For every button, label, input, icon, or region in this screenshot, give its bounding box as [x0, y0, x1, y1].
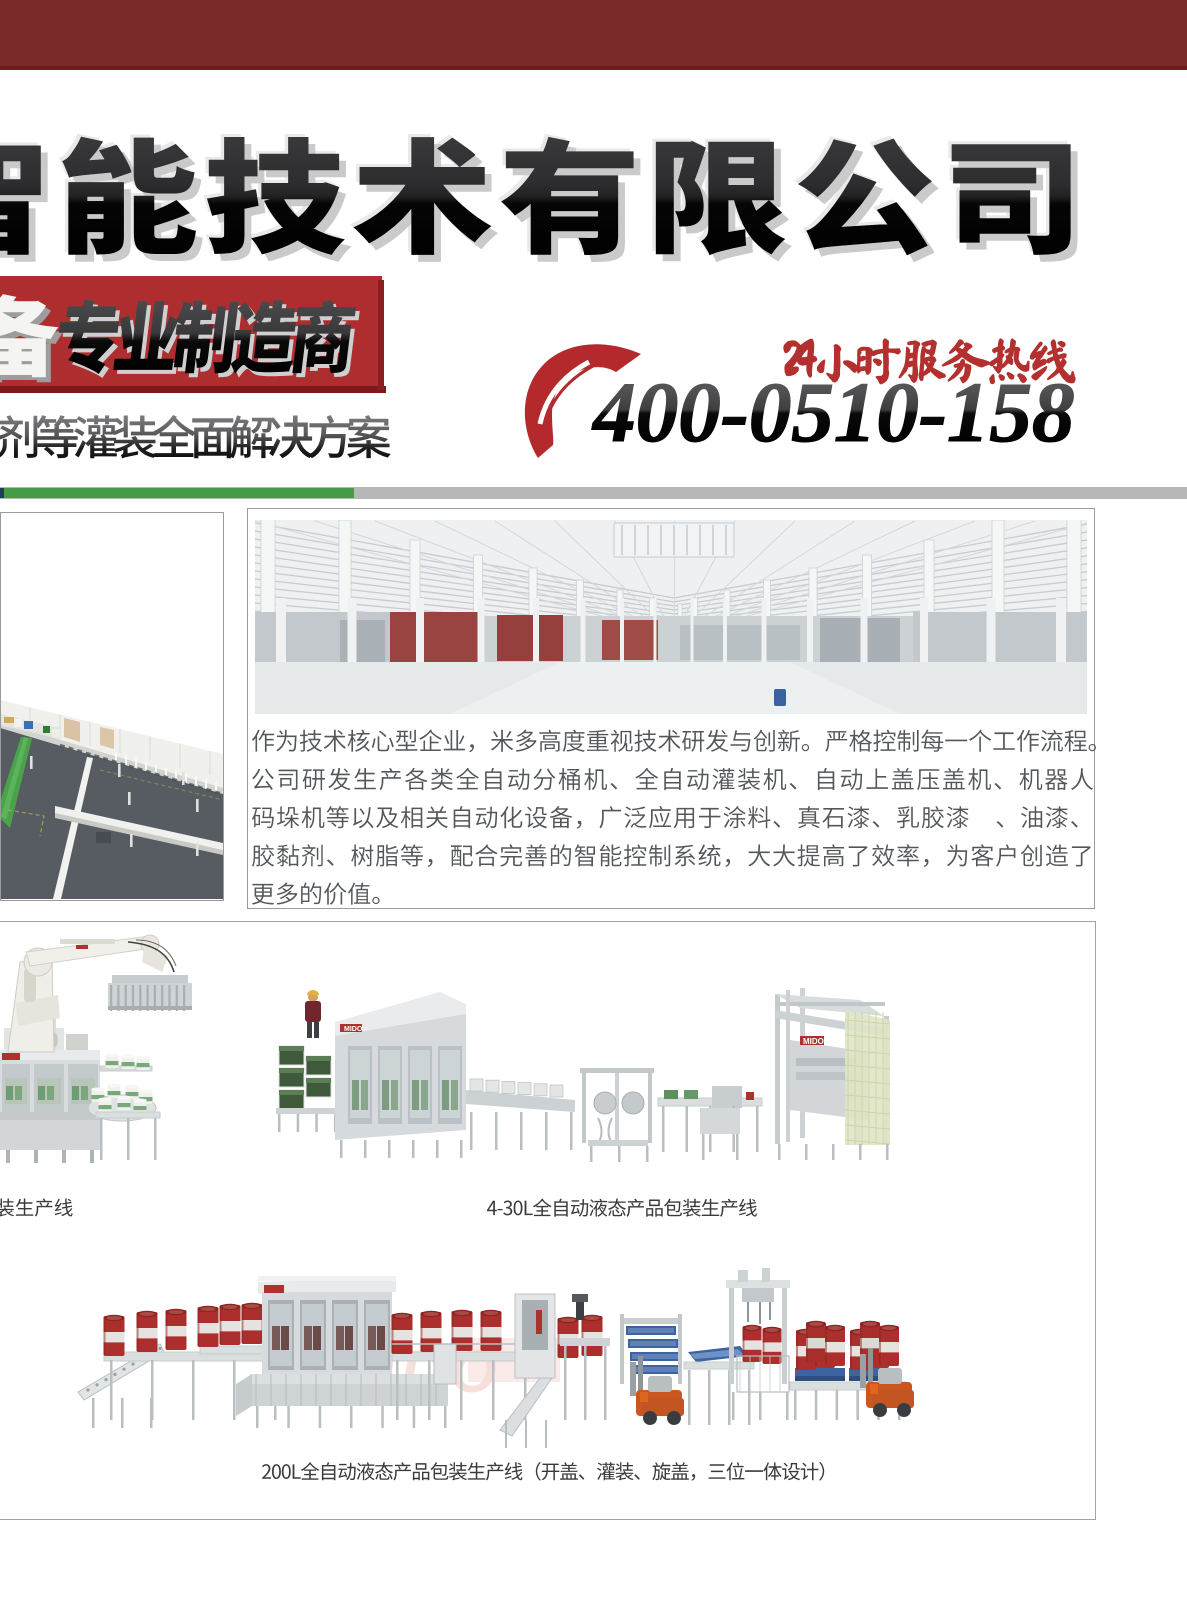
svg-text:MIDO: MIDO [344, 1026, 363, 1033]
svg-text:400-0510-158: 400-0510-158 [591, 364, 1074, 460]
svg-text:MIDO: MIDO [803, 1037, 824, 1046]
